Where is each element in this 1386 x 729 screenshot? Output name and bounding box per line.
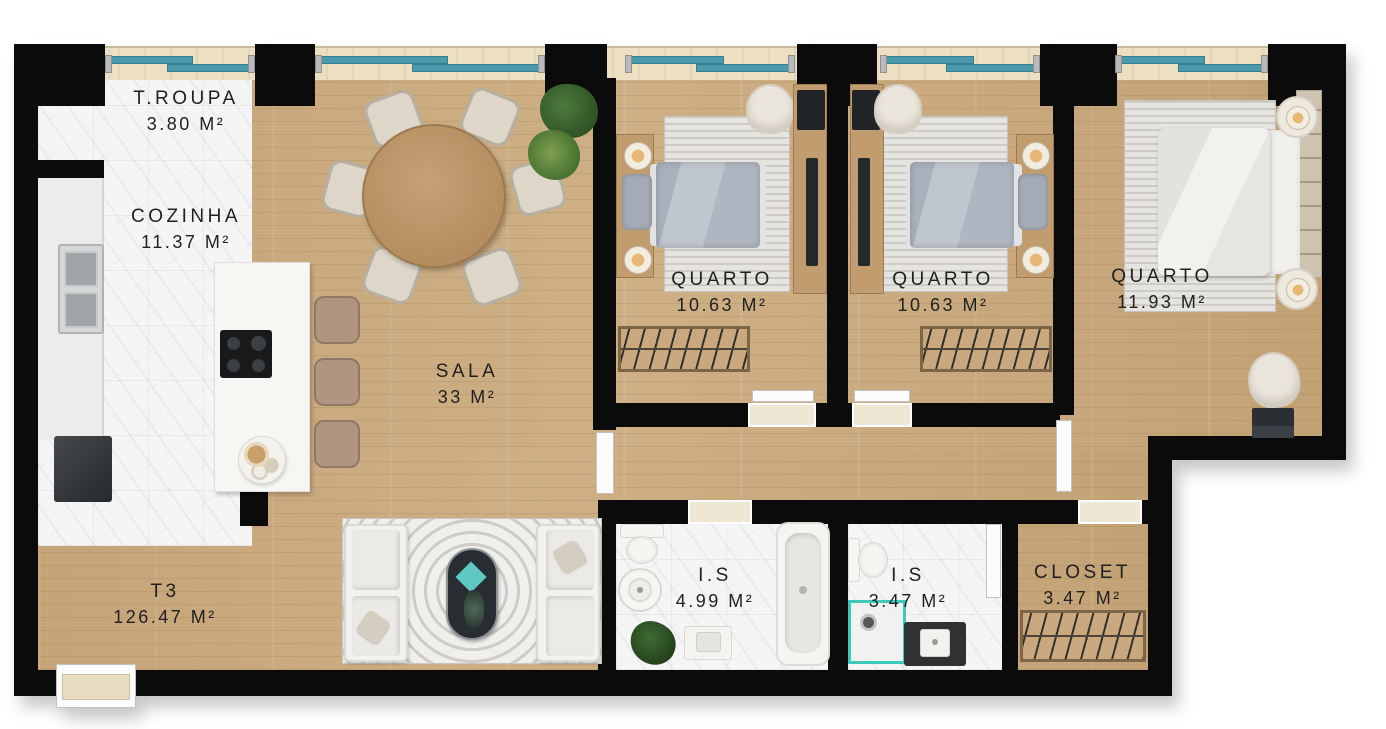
- room-name: T.ROUPA: [96, 87, 276, 110]
- window-icon: [315, 53, 545, 73]
- sink-basin: [64, 251, 98, 287]
- coffee-table: [446, 548, 498, 640]
- bedside-lamp: [1286, 278, 1310, 302]
- wall-segment: [1322, 44, 1346, 460]
- window-pane: [167, 64, 253, 72]
- room-area: 11.93 M²: [1072, 291, 1252, 314]
- room-name: I.S: [818, 564, 998, 587]
- room-label-quarto2: QUARTO 10.63 M²: [853, 268, 1033, 317]
- room-label-is2: I.S 3.47 M²: [818, 564, 998, 613]
- bed-pillow: [1018, 174, 1048, 230]
- wall-segment: [816, 403, 852, 427]
- room-label-sala: SALA 33 M²: [377, 360, 557, 409]
- wall-segment: [38, 160, 104, 180]
- room-area: 3.47 M²: [990, 587, 1175, 610]
- room-label-closet: CLOSET 3.47 M²: [990, 561, 1175, 610]
- room-name: QUARTO: [1072, 265, 1252, 288]
- wall-segment: [912, 403, 1060, 427]
- wall-segment: [240, 488, 268, 526]
- room-area: 10.63 M²: [853, 294, 1033, 317]
- window-pane: [317, 56, 448, 64]
- vanity-counter: [904, 622, 966, 666]
- clothes-rack: [618, 326, 750, 372]
- wall-segment: [14, 44, 38, 696]
- window-frame: [625, 55, 632, 73]
- window-pane: [882, 56, 974, 64]
- room-name: CLOSET: [990, 561, 1175, 584]
- dining-table: [362, 124, 506, 268]
- wall-segment: [827, 78, 848, 410]
- window-pane: [946, 64, 1038, 72]
- room-name: T3: [75, 580, 255, 603]
- wall-pillar: [1040, 44, 1117, 106]
- room-label-quarto1: QUARTO 10.63 M²: [632, 268, 812, 317]
- room-label-t3-total: T3 126.47 M²: [75, 580, 255, 629]
- wall-pillar: [14, 44, 105, 106]
- sofa-cushion: [352, 530, 400, 590]
- monitor-icon: [797, 90, 825, 130]
- bedroom3-door: [1056, 420, 1072, 492]
- sofa-cushion: [546, 596, 594, 656]
- window-frame: [538, 55, 545, 73]
- window-pane: [696, 64, 793, 72]
- room-area: 126.47 M²: [75, 606, 255, 629]
- bed-pillow: [622, 174, 652, 230]
- window-pane: [627, 56, 724, 64]
- window-frame: [105, 55, 112, 73]
- tv-icon: [806, 158, 818, 266]
- room-name: QUARTO: [853, 268, 1033, 291]
- clothes-rack: [920, 326, 1052, 372]
- window-frame: [248, 55, 255, 73]
- bed-duvet: [1158, 128, 1270, 276]
- wall-segment: [1142, 500, 1172, 524]
- room-name: I.S: [625, 564, 805, 587]
- living-room-door: [596, 432, 614, 494]
- sink-drain: [932, 639, 938, 645]
- shower-drain: [863, 617, 874, 628]
- room-label-quarto3: QUARTO 11.93 M²: [1072, 265, 1252, 314]
- window-icon: [880, 53, 1040, 73]
- bed-duvet: [656, 162, 760, 248]
- bedroom2-door: [854, 390, 910, 402]
- window-frame: [1261, 55, 1268, 73]
- window-pane: [1117, 56, 1205, 64]
- window-pane: [412, 64, 543, 72]
- bedroom1-door: [752, 390, 814, 402]
- bedroom2-door-threshold: [852, 403, 912, 427]
- window-pane: [107, 56, 193, 64]
- room-area: 11.37 M²: [96, 231, 276, 254]
- bar-stool: [314, 296, 360, 344]
- room-area: 4.99 M²: [625, 590, 805, 613]
- entrance-door-leaf: [62, 674, 130, 700]
- table-plant: [464, 590, 484, 628]
- laptop-icon: [1252, 408, 1294, 438]
- wall-segment: [14, 670, 1172, 696]
- sink-bowl: [696, 632, 721, 652]
- room-label-is1: I.S 4.99 M²: [625, 564, 805, 613]
- bedside-lamp: [624, 142, 652, 170]
- room-area: 33 M²: [377, 386, 557, 409]
- serving-tray: [238, 436, 286, 484]
- room-label-troupa: T.ROUPA 3.80 M²: [96, 87, 276, 136]
- wall-segment: [1148, 436, 1346, 460]
- room-area: 3.47 M²: [818, 590, 998, 613]
- window-frame: [788, 55, 795, 73]
- armchair: [746, 84, 794, 134]
- room-name: COZINHA: [96, 205, 276, 228]
- wall-segment: [1053, 78, 1074, 415]
- bar-stool: [314, 420, 360, 468]
- table-decor: [455, 561, 486, 592]
- toilet-icon: [626, 536, 658, 564]
- bathroom1-door-threshold: [688, 500, 752, 524]
- bedside-lamp: [1022, 142, 1050, 170]
- window-icon: [625, 53, 795, 73]
- window-frame: [315, 55, 322, 73]
- window-pane: [1178, 64, 1266, 72]
- floor-plan-canvas: T.ROUPA 3.80 M² COZINHA 11.37 M² SALA 33…: [0, 0, 1386, 729]
- bed-duvet: [910, 162, 1014, 248]
- sofa: [344, 524, 408, 662]
- wall-segment: [616, 403, 748, 427]
- sink-basin: [64, 292, 98, 328]
- room-name: QUARTO: [632, 268, 812, 291]
- window-icon: [1115, 53, 1268, 73]
- room-area: 3.80 M²: [96, 113, 276, 136]
- bedroom1-door-threshold: [748, 403, 816, 427]
- bar-stool: [314, 358, 360, 406]
- vanity-sink: [684, 626, 732, 660]
- plant-icon: [528, 130, 580, 180]
- sofa: [536, 524, 600, 662]
- window-frame: [880, 55, 887, 73]
- window-frame: [1033, 55, 1040, 73]
- clothes-rack: [1020, 610, 1146, 662]
- closet-door-threshold: [1078, 500, 1142, 524]
- room-label-cozinha: COZINHA 11.37 M²: [96, 205, 276, 254]
- room-name: SALA: [377, 360, 557, 383]
- room-area: 10.63 M²: [632, 294, 812, 317]
- apartment-floor-plan: T.ROUPA 3.80 M² COZINHA 11.37 M² SALA 33…: [0, 0, 1386, 729]
- cooktop: [220, 330, 272, 378]
- window-frame: [1115, 55, 1122, 73]
- tv-icon: [858, 158, 870, 266]
- bedside-lamp: [1286, 106, 1310, 130]
- refrigerator: [54, 436, 112, 502]
- kitchen-sink: [58, 244, 104, 334]
- wall-segment: [593, 78, 616, 430]
- armchair: [874, 84, 922, 134]
- window-icon: [105, 53, 255, 73]
- wall-segment: [752, 500, 1078, 524]
